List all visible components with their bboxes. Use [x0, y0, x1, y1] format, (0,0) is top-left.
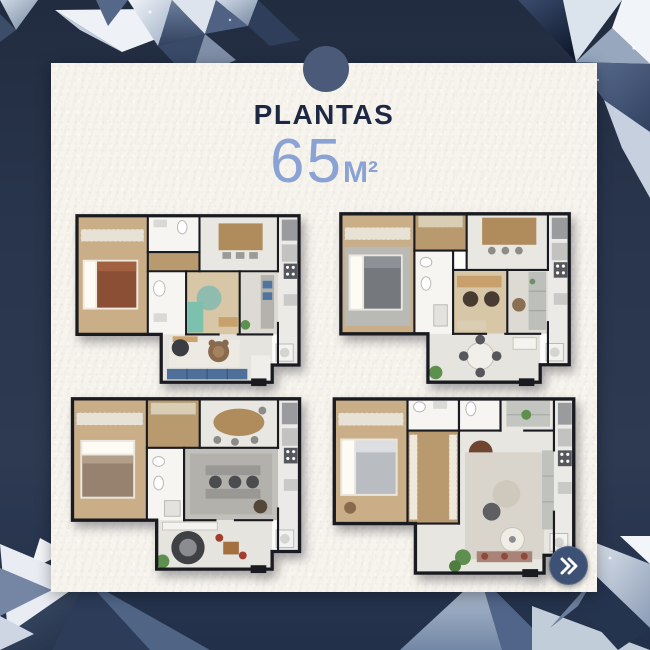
floorplan-thumbnail-1	[68, 210, 308, 388]
poster-background: PLANTAS 65M²	[0, 0, 650, 650]
floorplan-3-image	[66, 391, 308, 575]
next-button[interactable]	[549, 546, 588, 585]
floorplan-thumbnail-3	[66, 391, 308, 575]
area-label: 65M²	[51, 131, 597, 193]
area-value: 65	[270, 127, 343, 196]
floorplan-thumbnail-4	[327, 391, 583, 579]
double-chevron-right-icon	[558, 556, 580, 576]
floorplan-1-image	[68, 210, 308, 388]
accent-dot	[303, 46, 349, 92]
floorplan-thumbnail-2	[331, 208, 581, 388]
floorplan-2-image	[331, 208, 581, 388]
area-unit: M²	[343, 156, 378, 189]
floorplan-4-image	[327, 391, 583, 579]
content-card: PLANTAS 65M²	[51, 63, 597, 592]
